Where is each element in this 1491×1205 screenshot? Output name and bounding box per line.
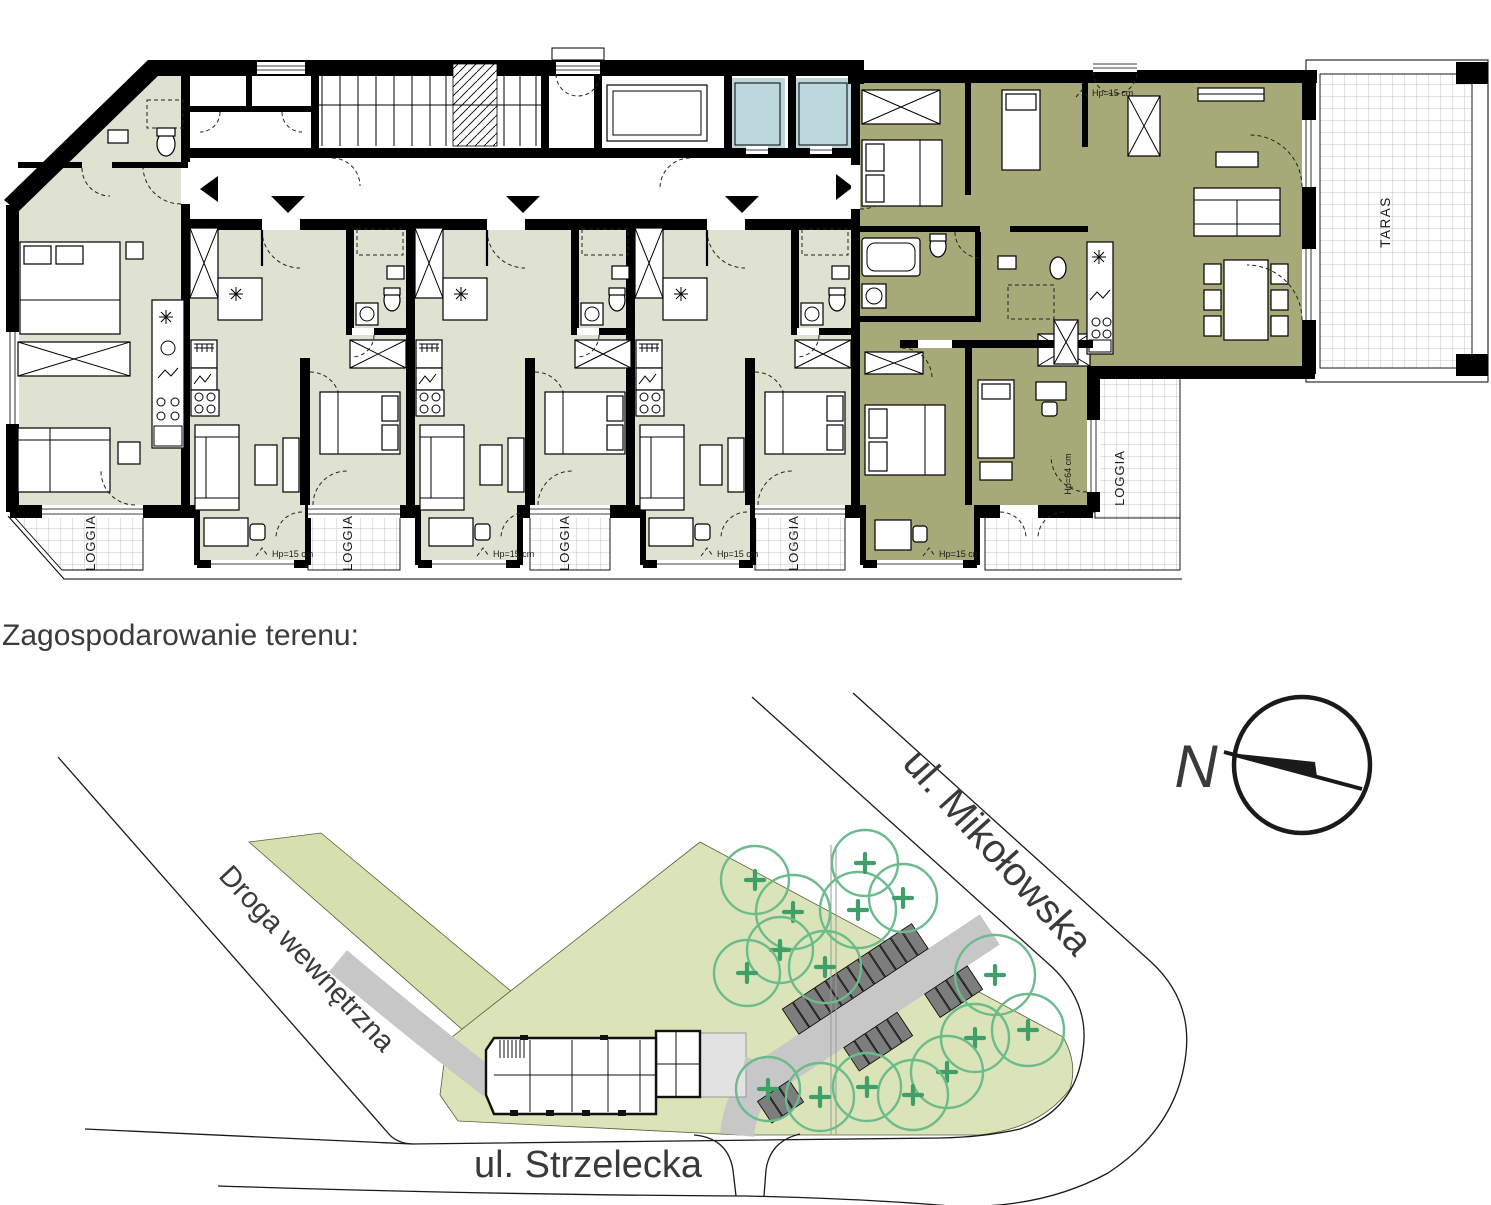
taras-area: [1320, 74, 1472, 368]
section-title: Zagospodarowanie terenu:: [2, 614, 1491, 665]
loggia-label: LOGGIA: [1112, 450, 1127, 506]
plaza: [700, 1033, 746, 1097]
loggia-label: LOGGIA: [786, 515, 801, 571]
page: LOGGIA LOGGIA LOGGIA LOGGIA LOGGIA TARAS…: [0, 0, 1491, 1205]
loggia-5-area: [985, 512, 1180, 570]
street-label-strzelecka: ul. Strzelecka: [474, 1144, 703, 1186]
hp-label: Hp=15 cm: [1092, 88, 1133, 98]
hp-label: Hp=15 cm: [493, 549, 534, 559]
hp-label: Hp=15 cm: [272, 549, 313, 559]
elevator-shaft-1: [730, 78, 785, 152]
loggia-label: LOGGIA: [340, 515, 355, 571]
taras-label: TARAS: [1378, 196, 1393, 248]
loggia-label: LOGGIA: [557, 515, 572, 571]
tree-icon: [869, 864, 937, 932]
hp-label: Hp=64 cm: [1063, 453, 1073, 494]
north-arrow: N: [1174, 697, 1370, 833]
loggia-label: LOGGIA: [83, 515, 98, 571]
hp-label: Hp=15 cm: [939, 549, 980, 559]
floor-plan: LOGGIA LOGGIA LOGGIA LOGGIA LOGGIA TARAS…: [0, 0, 1491, 600]
elevator-shaft-2: [794, 78, 852, 152]
site-plan: ul. Mikołowska Droga wewnętrzna ul. Strz…: [0, 665, 1491, 1205]
north-label: N: [1174, 733, 1218, 800]
tree-icon: [832, 830, 898, 896]
loggia-5-upper: [1095, 378, 1180, 518]
elevator-lobby: [607, 85, 707, 141]
hp-label: Hp=15 cm: [717, 549, 758, 559]
